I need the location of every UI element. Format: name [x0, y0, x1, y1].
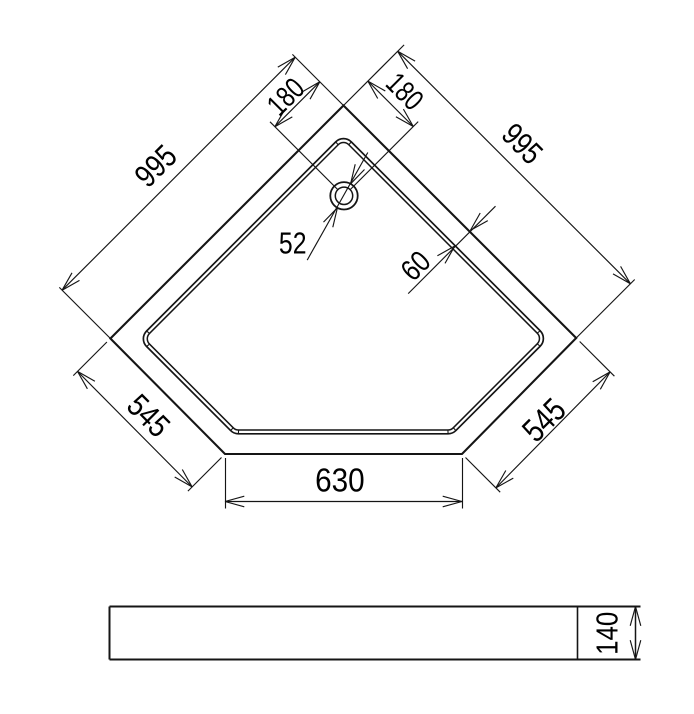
svg-text:180: 180 [379, 66, 430, 117]
svg-text:180: 180 [260, 71, 311, 122]
svg-text:545: 545 [516, 392, 573, 449]
svg-text:995: 995 [129, 139, 185, 195]
svg-text:995: 995 [494, 117, 549, 172]
svg-text:140: 140 [590, 612, 624, 655]
svg-text:52: 52 [279, 226, 307, 260]
svg-text:60: 60 [394, 244, 437, 287]
svg-text:630: 630 [315, 462, 365, 499]
